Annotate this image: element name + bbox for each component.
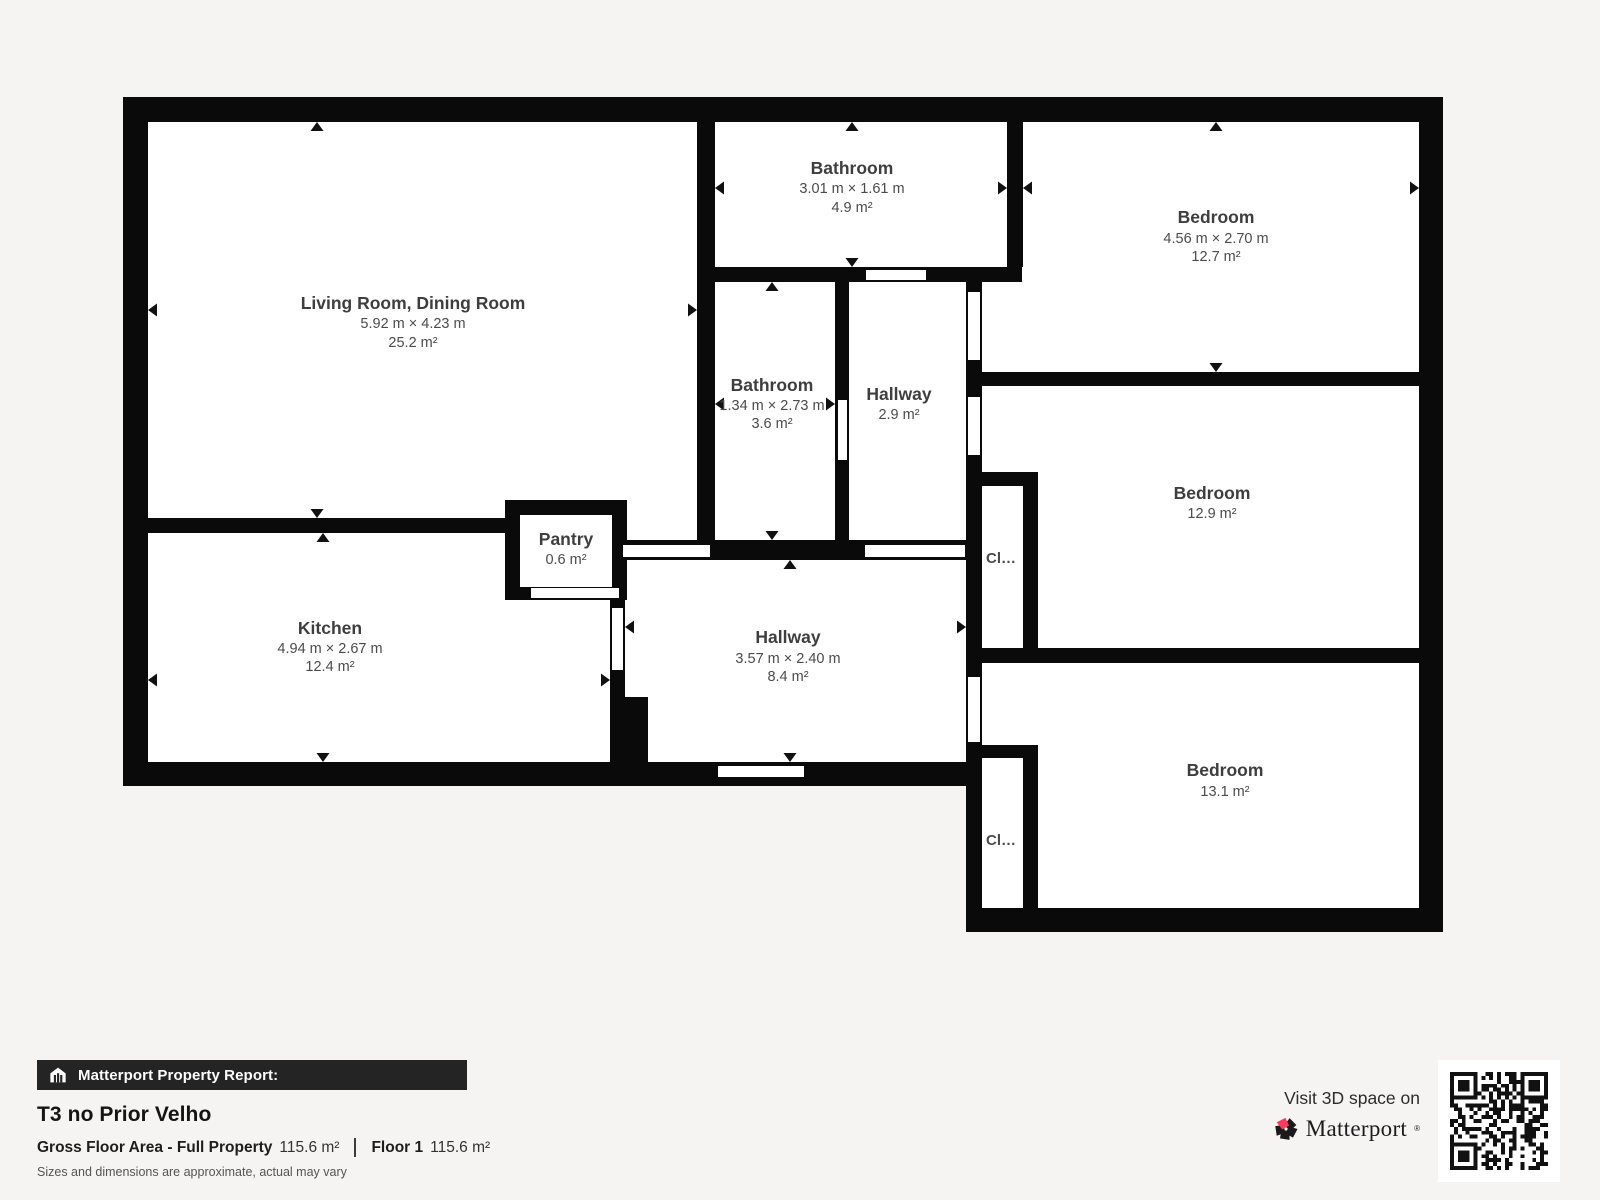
property-title: T3 no Prior Velho	[37, 1103, 211, 1127]
gfa-value: 115.6 m²	[279, 1139, 339, 1157]
area-stats: Gross Floor Area - Full Property 115.6 m…	[37, 1138, 490, 1157]
room-name: Cl…	[986, 550, 1016, 567]
room-dims: 3.01 m × 1.61 m	[799, 181, 904, 197]
closet-label-lower: Cl…	[986, 832, 1016, 849]
pantry-floor	[520, 515, 612, 587]
disclaimer-text: Sizes and dimensions are approximate, ac…	[37, 1165, 347, 1179]
room-area: 12.7 m²	[1191, 249, 1240, 265]
room-area: 2.9 m²	[878, 407, 919, 423]
floor-value: 115.6 m²	[430, 1139, 490, 1157]
room-dims: 1.34 m × 2.73 m	[719, 398, 824, 414]
room-label-pantry: Pantry 0.6 m²	[539, 529, 594, 568]
report-bar: Matterport Property Report:	[37, 1060, 467, 1090]
room-name: Bedroom	[1178, 207, 1255, 227]
room-area: 25.2 m²	[388, 335, 437, 351]
room-name: Living Room, Dining Room	[301, 293, 526, 313]
room-name: Bedroom	[1187, 760, 1264, 780]
visit-3d-label: Visit 3D space on	[1273, 1088, 1420, 1109]
floor-plan: Living Room, Dining Room 5.92 m × 4.23 m…	[0, 0, 1600, 1200]
room-area: 13.1 m²	[1200, 784, 1249, 800]
room-name: Kitchen	[298, 618, 362, 638]
room-area: 8.4 m²	[767, 669, 808, 685]
room-dims: 4.56 m × 2.70 m	[1163, 231, 1268, 247]
trademark-mark: ®	[1414, 1125, 1420, 1133]
room-name: Bathroom	[811, 158, 894, 178]
floorplan-report-page: Living Room, Dining Room 5.92 m × 4.23 m…	[0, 0, 1600, 1200]
matterport-pinwheel-icon	[1273, 1116, 1299, 1142]
qr-code	[1438, 1060, 1560, 1182]
room-name: Cl…	[986, 832, 1016, 849]
room-area: 3.6 m²	[751, 416, 792, 432]
stats-divider	[354, 1138, 356, 1157]
room-area: 0.6 m²	[545, 552, 586, 568]
gfa-label: Gross Floor Area - Full Property	[37, 1139, 272, 1157]
room-dims: 5.92 m × 4.23 m	[360, 316, 465, 332]
room-name: Hallway	[866, 384, 931, 404]
report-bar-label: Matterport Property Report:	[78, 1067, 278, 1084]
room-dims: 4.94 m × 2.67 m	[277, 641, 382, 657]
house-report-icon	[49, 1066, 67, 1084]
matterport-logo: Matterport®	[1273, 1116, 1420, 1142]
room-area: 12.4 m²	[305, 659, 354, 675]
closet-label-upper: Cl…	[986, 550, 1016, 567]
room-name: Hallway	[755, 627, 820, 647]
room-name: Pantry	[539, 529, 594, 549]
room-dims: 3.57 m × 2.40 m	[735, 651, 840, 667]
room-area: 4.9 m²	[831, 200, 872, 216]
visit-3d-cta: Visit 3D space on Matterport®	[1273, 1088, 1420, 1142]
floor-label: Floor 1	[371, 1139, 423, 1157]
room-name: Bathroom	[731, 375, 814, 395]
matterport-wordmark: Matterport	[1306, 1116, 1407, 1142]
room-name: Bedroom	[1174, 483, 1251, 503]
room-area: 12.9 m²	[1187, 506, 1236, 522]
